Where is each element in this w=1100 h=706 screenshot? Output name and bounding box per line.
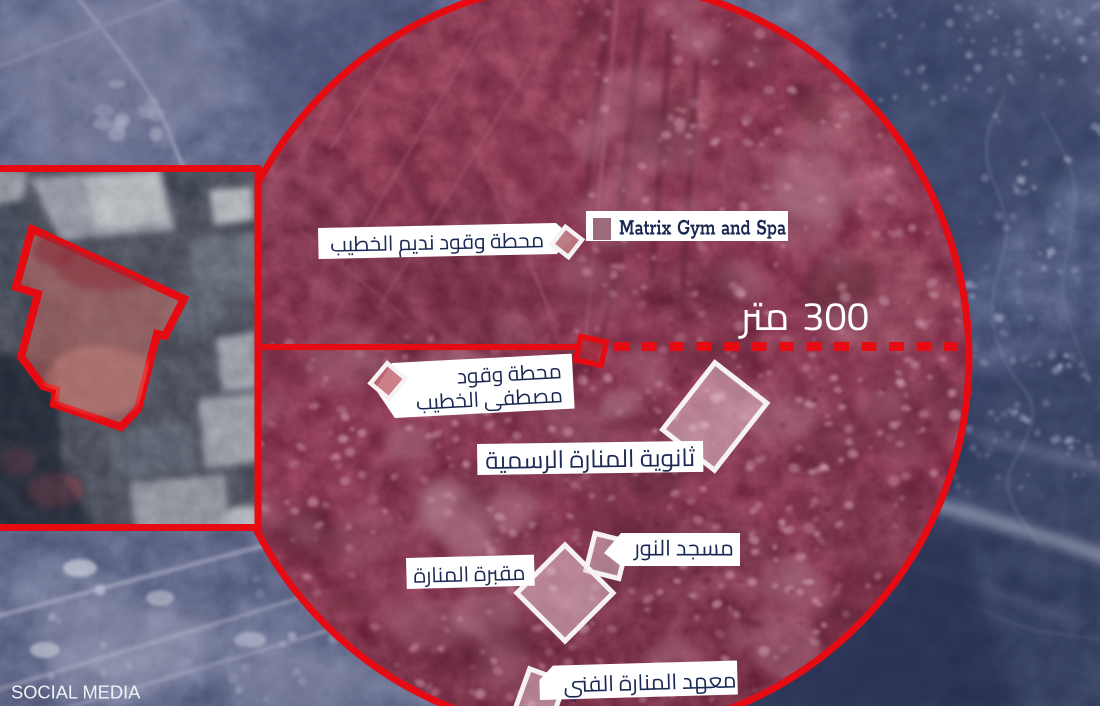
- svg-text:SOCIAL MEDIA: SOCIAL MEDIA: [11, 681, 141, 702]
